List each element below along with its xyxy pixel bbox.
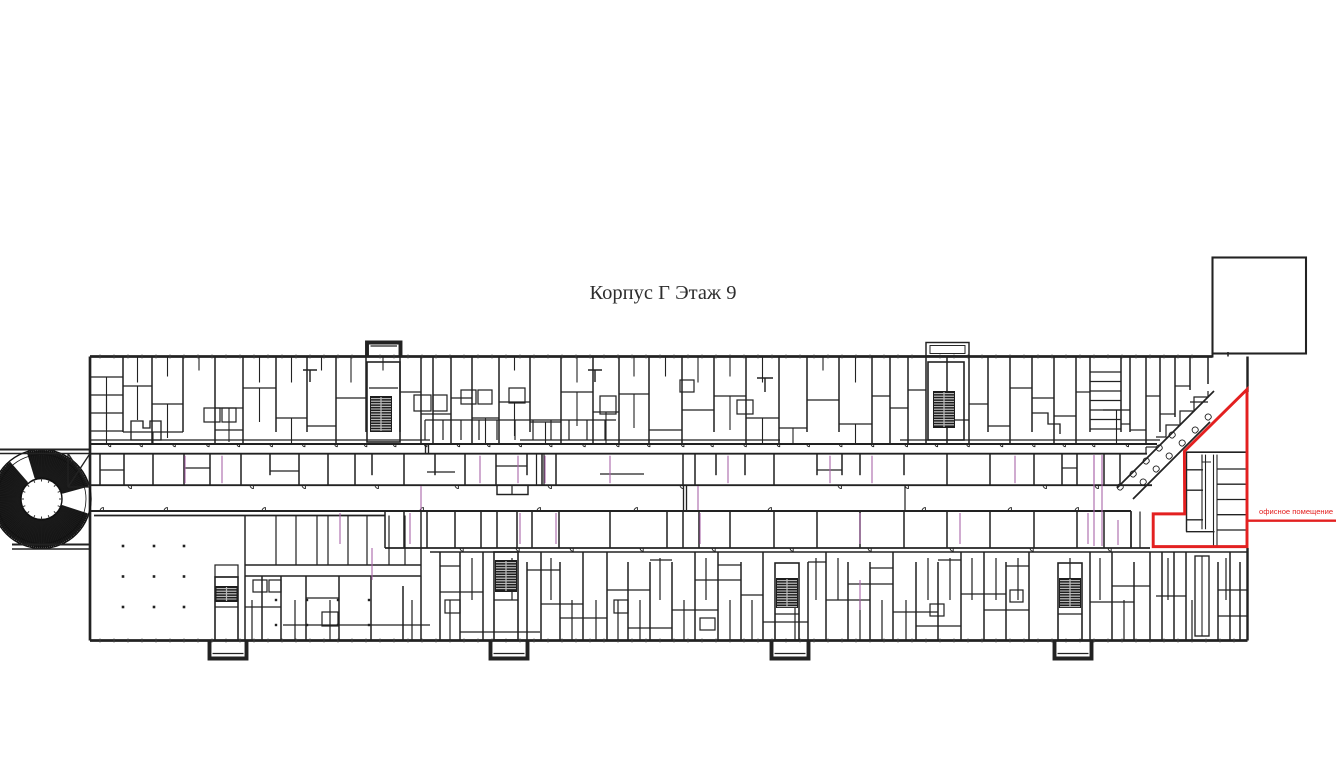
svg-text:офисное помещение: офисное помещение: [1259, 507, 1333, 516]
svg-text:Корпус Г Этаж 9: Корпус Г Этаж 9: [590, 282, 737, 304]
